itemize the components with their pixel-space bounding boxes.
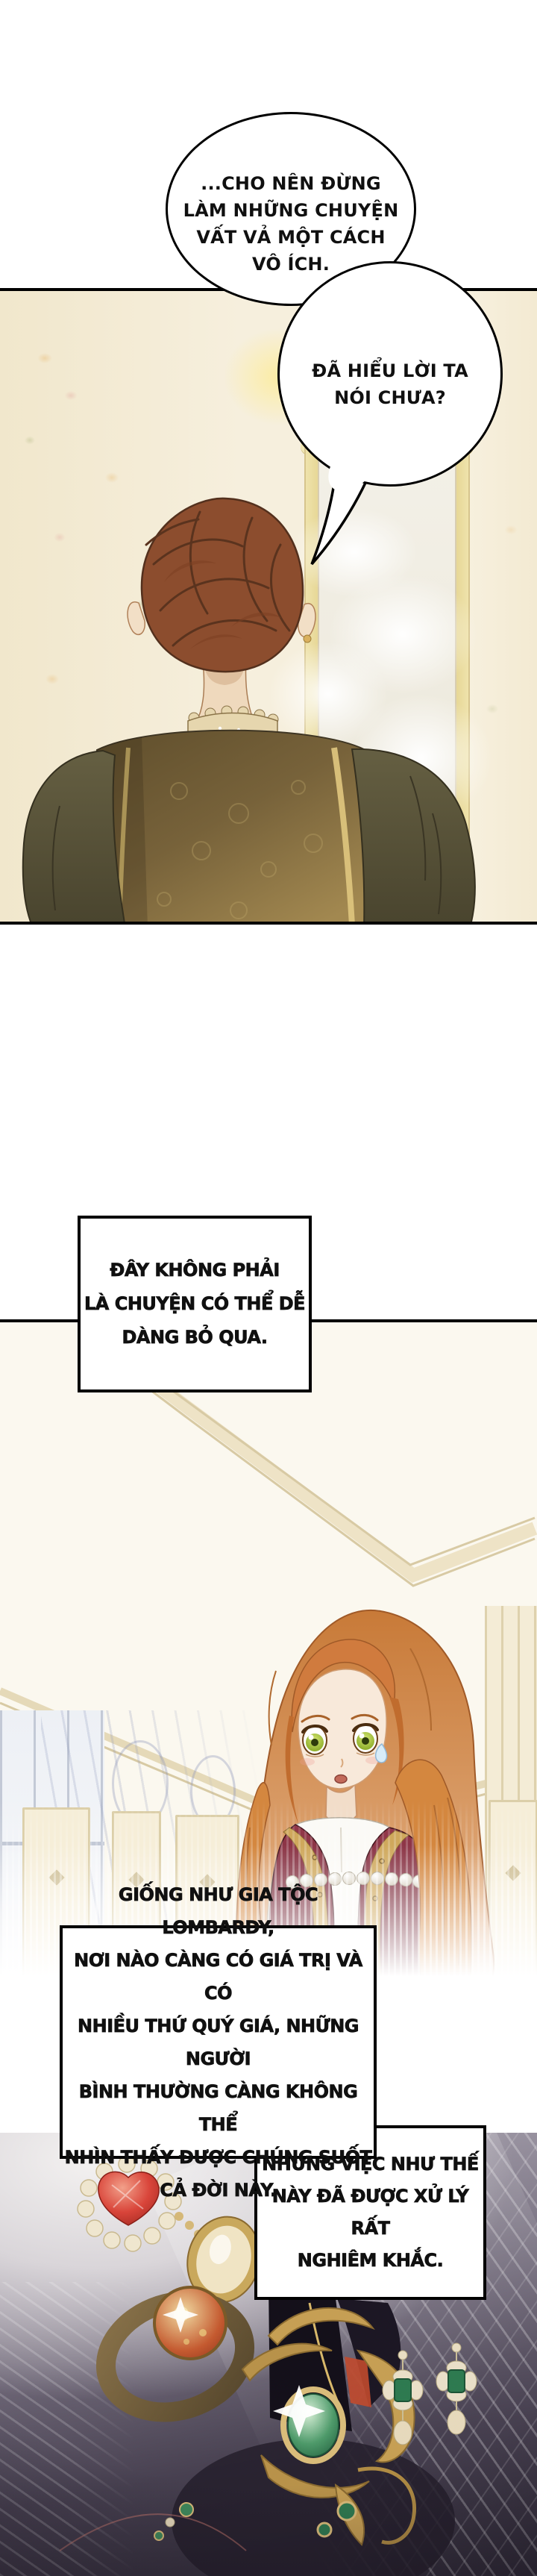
bubble-line: LÀM NHỮNG CHUYỆN — [183, 197, 399, 224]
bubble-line: VÔ ÍCH. — [252, 251, 330, 278]
narration-line: GIỐNG NHƯ GIA TỘC LOMBARDY, — [63, 1878, 374, 1944]
bubble-line: ...CHO NÊN ĐỪNG — [201, 170, 381, 197]
narration-line: NHÌN THẤY ĐƯỢC CHÚNG SUỐT — [65, 2141, 372, 2174]
narration-line: LÀ CHUYỆN CÓ THỂ DỄ — [84, 1287, 305, 1321]
narration-line: DÀNG BỎ QUA. — [122, 1321, 268, 1354]
narration-line: ĐÂY KHÔNG PHẢI — [110, 1254, 280, 1287]
narration-line: NGHIÊM KHẮC. — [298, 2245, 443, 2277]
bubble-line: NÓI CHƯA? — [312, 384, 468, 411]
narration-line: BÌNH THƯỜNG CÀNG KHÔNG THỂ — [63, 2075, 374, 2141]
woman-back-figure — [15, 493, 522, 925]
narration-box-2: GIỐNG NHƯ GIA TỘC LOMBARDY, NƠI NÀO CÀNG… — [60, 1925, 377, 2159]
speech-bubble-2: ĐÃ HIỂU LỜI TA NÓI CHƯA? — [277, 261, 503, 487]
narration-line: NHIỀU THỨ QUÝ GIÁ, NHỮNG NGƯỜI — [63, 2010, 374, 2075]
webtoon-page: ...CHO NÊN ĐỪNG LÀM NHỮNG CHUYỆN VẤT VẢ … — [0, 0, 537, 2576]
bubble-line: VẤT VẢ MỘT CÁCH — [196, 224, 385, 251]
narration-line: NƠI NÀO CÀNG CÓ GIÁ TRỊ VÀ CÓ — [63, 1944, 374, 2010]
bubble-line: ĐÃ HIỂU LỜI TA — [312, 357, 468, 384]
narration-box-1: ĐÂY KHÔNG PHẢI LÀ CHUYỆN CÓ THỂ DỄ DÀNG … — [78, 1216, 312, 1392]
narration-line: NÀY ĐÃ ĐƯỢC XỬ LÝ RẤT — [257, 2180, 483, 2245]
narration-line: CẢ ĐỜI NÀY. — [160, 2174, 276, 2207]
